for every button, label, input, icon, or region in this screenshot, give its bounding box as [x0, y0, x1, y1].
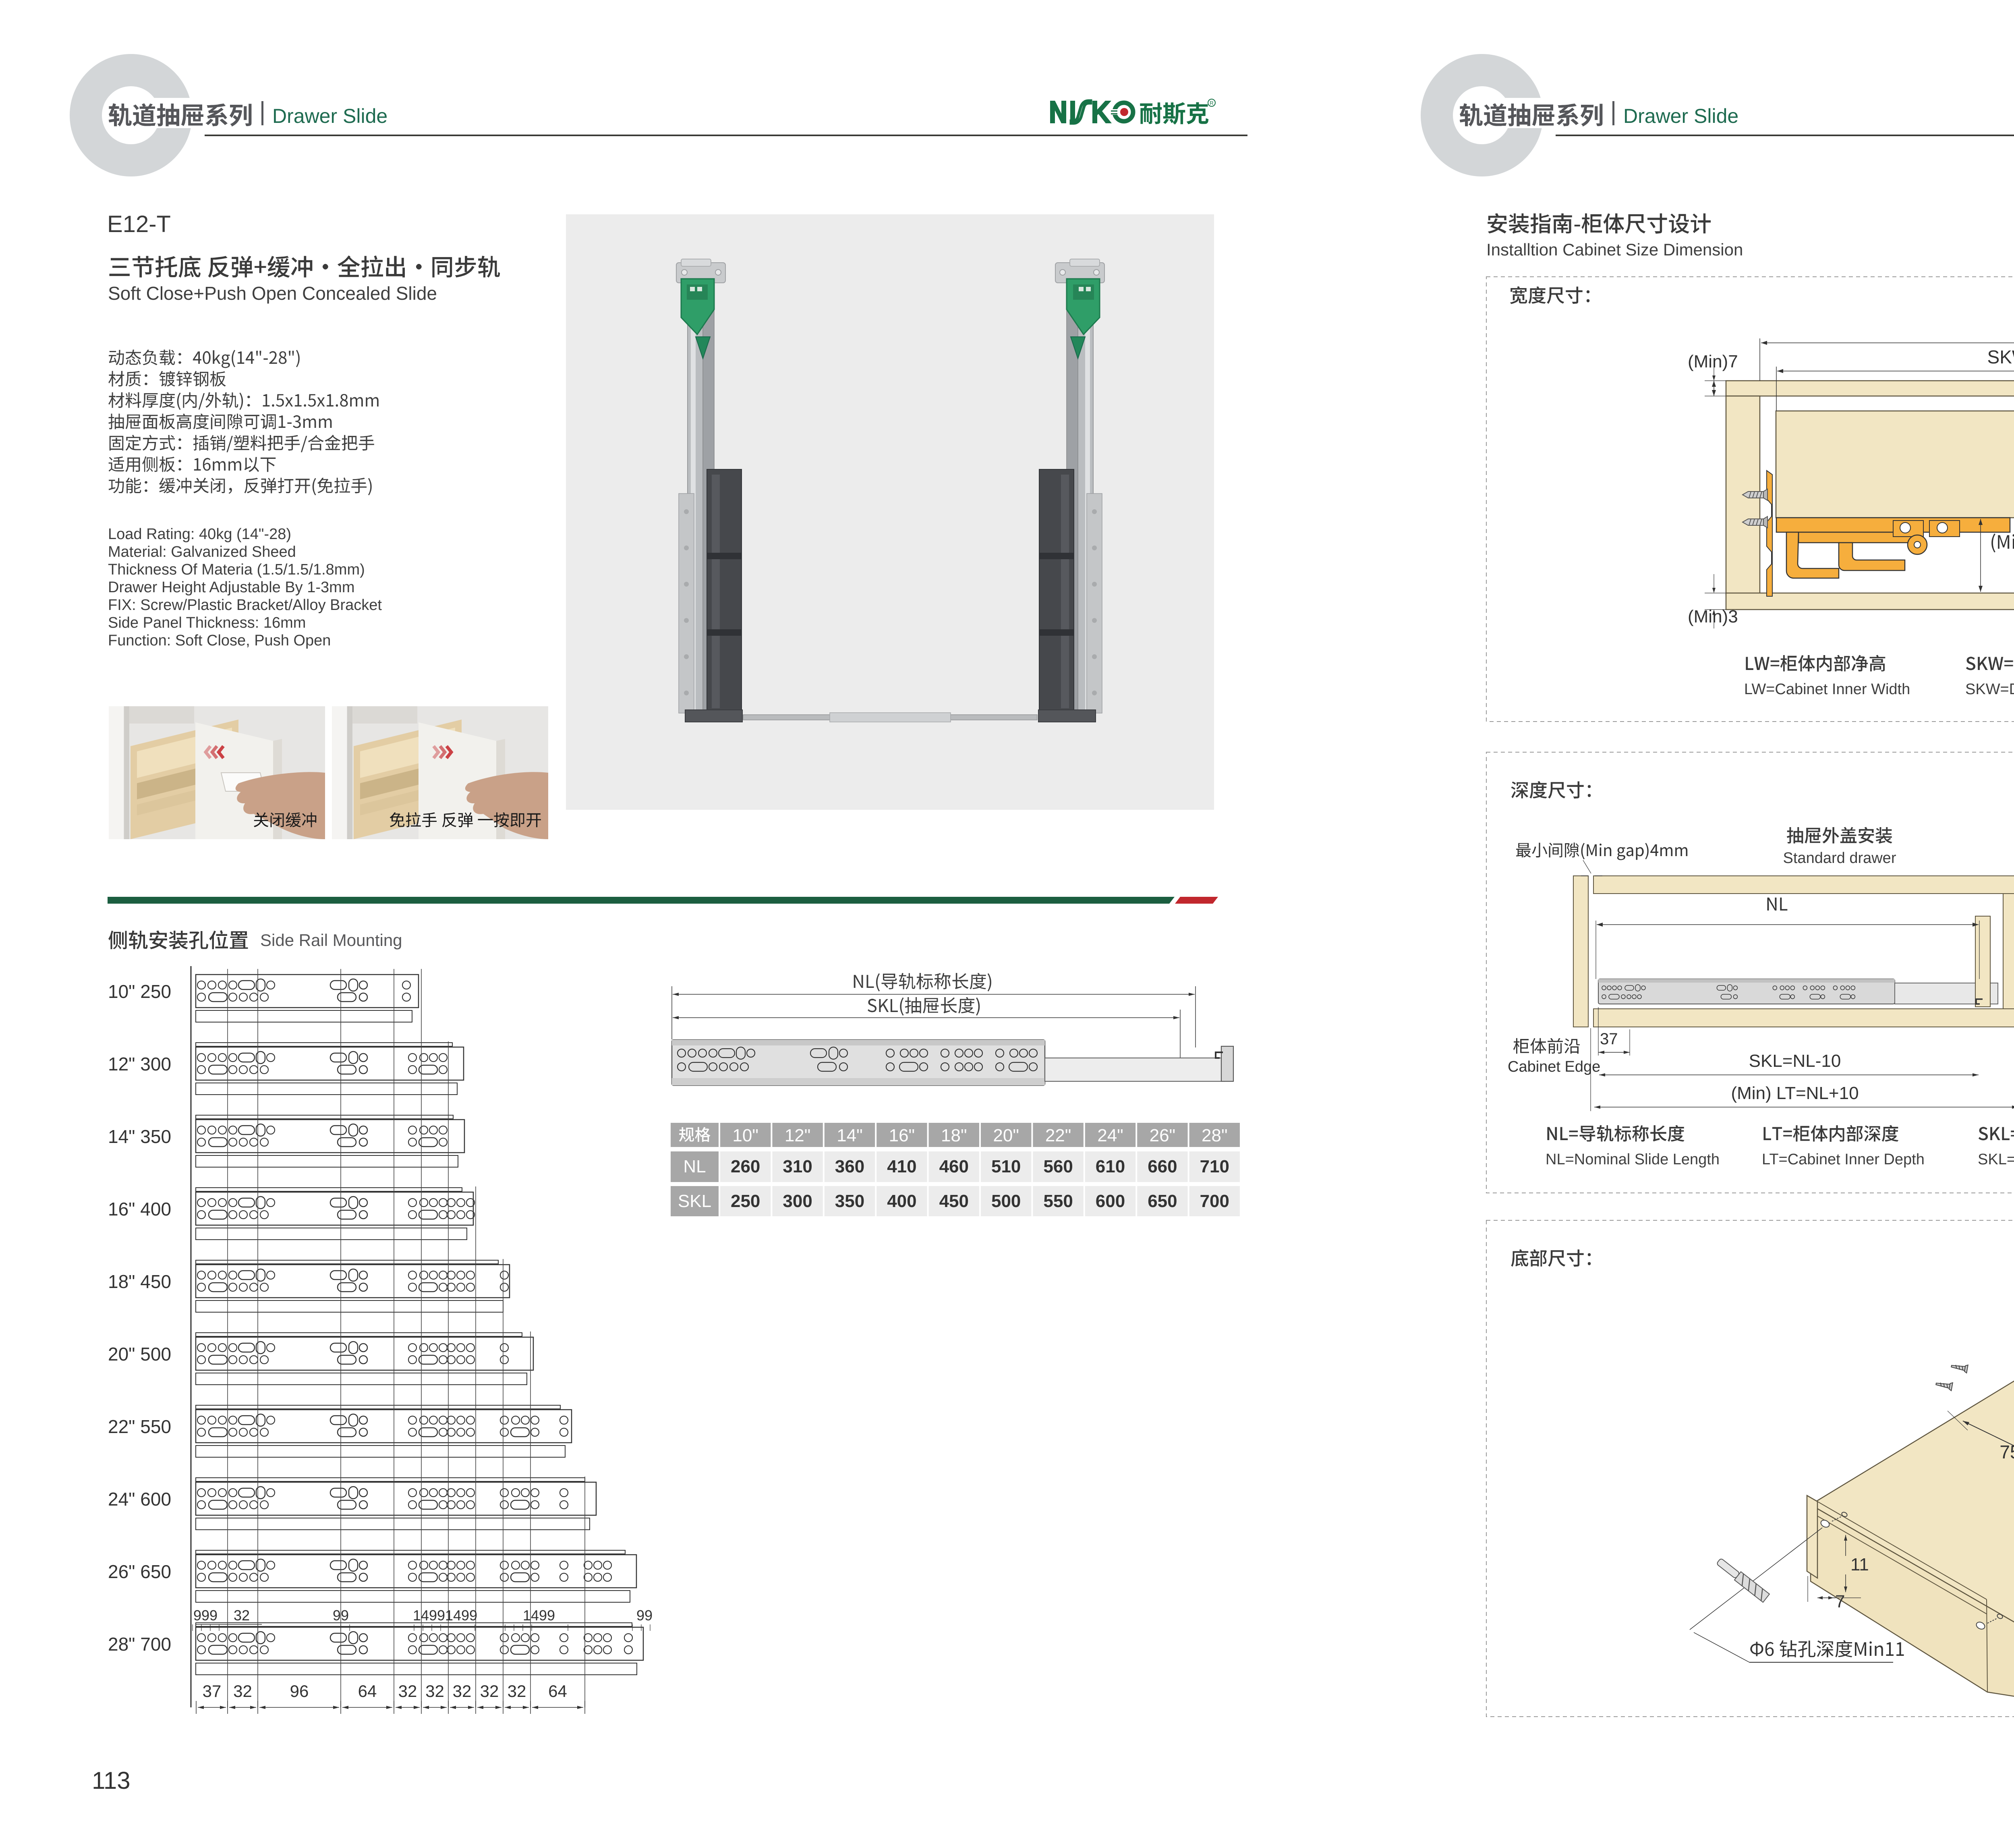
- svg-text:560: 560: [1043, 1157, 1073, 1176]
- svg-text:Function: Soft Close, Push Ope: Function: Soft Close, Push Open: [108, 632, 331, 649]
- svg-text:400: 400: [887, 1191, 916, 1211]
- svg-text:(Min)7: (Min)7: [1688, 352, 1738, 371]
- svg-text:Side Rail Mounting: Side Rail Mounting: [260, 931, 402, 950]
- svg-text:Drawer Height Adjustable By 1-: Drawer Height Adjustable By 1-3mm: [108, 579, 354, 596]
- svg-text:Cabinet Edge: Cabinet Edge: [1508, 1058, 1600, 1075]
- svg-text:11: 11: [1850, 1555, 1869, 1574]
- svg-text:10" 250: 10" 250: [108, 981, 171, 1002]
- svg-text:Drawer Slide: Drawer Slide: [272, 105, 387, 127]
- svg-text:360: 360: [835, 1157, 864, 1176]
- svg-text:FIX: Screw/Plastic Bracket/All: FIX: Screw/Plastic Bracket/Alloy Bracket: [108, 597, 382, 614]
- svg-text:14" 350: 14" 350: [108, 1126, 171, 1147]
- svg-text:1499: 1499: [445, 1607, 477, 1624]
- svg-text:26" 650: 26" 650: [108, 1561, 171, 1582]
- svg-text:SKL: SKL: [678, 1191, 711, 1211]
- svg-text:32: 32: [233, 1682, 252, 1701]
- svg-text:300: 300: [783, 1191, 812, 1211]
- svg-text:32: 32: [480, 1682, 499, 1701]
- svg-text:37: 37: [203, 1682, 222, 1701]
- svg-text:Drawer Slide: Drawer Slide: [1623, 105, 1738, 127]
- svg-text:310: 310: [783, 1157, 812, 1176]
- svg-text:113: 113: [92, 1767, 131, 1794]
- svg-text:24" 600: 24" 600: [108, 1489, 171, 1510]
- svg-text:450: 450: [939, 1191, 969, 1211]
- svg-text:37: 37: [1600, 1030, 1618, 1048]
- svg-text:16": 16": [889, 1126, 915, 1145]
- svg-text:Installtion Cabinet Size Dimen: Installtion Cabinet Size Dimension: [1486, 240, 1743, 259]
- svg-text:18" 450: 18" 450: [108, 1271, 171, 1292]
- svg-text:20": 20": [993, 1126, 1019, 1145]
- svg-text:510: 510: [991, 1157, 1021, 1176]
- svg-text:SKW=Drawer Width: SKW=Drawer Width: [1965, 681, 2014, 698]
- svg-text:64: 64: [358, 1682, 377, 1701]
- svg-text:28" 700: 28" 700: [108, 1634, 171, 1655]
- svg-text:32: 32: [234, 1607, 250, 1624]
- svg-text:16" 400: 16" 400: [108, 1199, 171, 1220]
- svg-text:24": 24": [1097, 1126, 1123, 1145]
- svg-text:NL=Nominal Slide Length: NL=Nominal Slide Length: [1546, 1151, 1720, 1168]
- svg-text:SKW=LW-42: SKW=LW-42: [1987, 346, 2014, 367]
- svg-text:32: 32: [398, 1682, 417, 1701]
- svg-text:350: 350: [835, 1191, 864, 1211]
- svg-text:7: 7: [1835, 1592, 1845, 1612]
- svg-text:SKL=NL-10: SKL=NL-10: [1749, 1051, 1841, 1071]
- svg-text:Load Rating: 40kg (14"-28): Load Rating: 40kg (14"-28): [108, 526, 291, 543]
- svg-text:12": 12": [785, 1126, 811, 1145]
- svg-text:Soft Close+Push Open Concealed: Soft Close+Push Open Concealed Slide: [108, 283, 437, 304]
- svg-text:1499: 1499: [523, 1607, 555, 1624]
- svg-text:710: 710: [1200, 1157, 1229, 1176]
- svg-text:96: 96: [290, 1682, 309, 1701]
- svg-text:250: 250: [731, 1191, 760, 1211]
- svg-text:LW=Cabinet Inner Width: LW=Cabinet Inner Width: [1744, 681, 1910, 698]
- svg-text:610: 610: [1096, 1157, 1125, 1176]
- svg-text:660: 660: [1148, 1157, 1177, 1176]
- svg-text:260: 260: [731, 1157, 760, 1176]
- svg-text:700: 700: [1200, 1191, 1229, 1211]
- svg-text:550: 550: [1043, 1191, 1073, 1211]
- svg-text:99: 99: [333, 1607, 349, 1624]
- svg-text:10": 10": [732, 1126, 758, 1145]
- svg-text:26": 26": [1150, 1126, 1176, 1145]
- svg-text:Standard drawer: Standard drawer: [1783, 850, 1896, 867]
- svg-text:32: 32: [425, 1682, 444, 1701]
- svg-text:32: 32: [508, 1682, 526, 1701]
- svg-text:NL: NL: [683, 1157, 706, 1176]
- svg-text:18": 18": [941, 1126, 967, 1145]
- svg-text:Side Panel Thickness: 16mm: Side Panel Thickness: 16mm: [108, 614, 306, 631]
- svg-text:Thickness Of Materia (1.5/1.5/: Thickness Of Materia (1.5/1.5/1.8mm): [108, 561, 365, 578]
- svg-text:99: 99: [636, 1607, 653, 1624]
- svg-text:460: 460: [939, 1157, 969, 1176]
- svg-text:20" 500: 20" 500: [108, 1344, 171, 1365]
- svg-text:28": 28": [1202, 1126, 1228, 1145]
- svg-text:LT=Cabinet Inner Depth: LT=Cabinet Inner Depth: [1762, 1151, 1925, 1168]
- svg-text:410: 410: [887, 1157, 916, 1176]
- svg-text:32: 32: [453, 1682, 472, 1701]
- svg-text:SKL=Drawer Length: SKL=Drawer Length: [1978, 1151, 2014, 1168]
- svg-text:650: 650: [1148, 1191, 1177, 1211]
- svg-text:E12-T: E12-T: [107, 211, 171, 237]
- svg-text:64: 64: [548, 1682, 567, 1701]
- svg-text:600: 600: [1096, 1191, 1125, 1211]
- svg-text:22": 22": [1045, 1126, 1071, 1145]
- svg-text:14": 14": [837, 1126, 863, 1145]
- svg-text:Material: Galvanized Sheed: Material: Galvanized Sheed: [108, 543, 296, 560]
- svg-text:22" 550: 22" 550: [108, 1416, 171, 1437]
- svg-text:R: R: [1210, 100, 1213, 106]
- svg-text:12" 300: 12" 300: [108, 1054, 171, 1074]
- svg-text:500: 500: [991, 1191, 1021, 1211]
- svg-text:(Min) LT=NL+10: (Min) LT=NL+10: [1731, 1083, 1859, 1103]
- svg-text:1499: 1499: [413, 1607, 445, 1624]
- svg-text:999: 999: [193, 1607, 218, 1624]
